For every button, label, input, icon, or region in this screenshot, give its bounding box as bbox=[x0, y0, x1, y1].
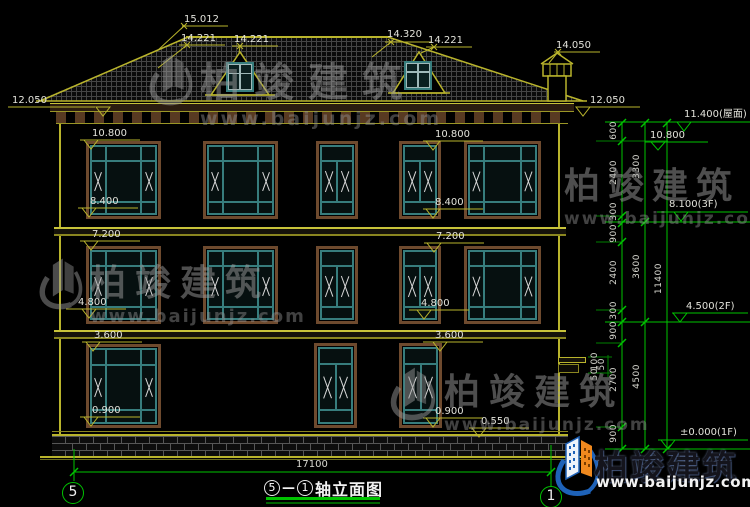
cornice-3f-2f bbox=[54, 227, 566, 236]
level-left-10800: 10.800 bbox=[92, 128, 127, 139]
level-left-8400: 8.400 bbox=[90, 196, 119, 207]
elev-mark-1f: ±0.000(1F) bbox=[680, 427, 737, 438]
watermark-url: www.baijunjz.com bbox=[200, 108, 442, 130]
title-axis-separator: — bbox=[282, 481, 295, 496]
title-text: 轴立面图 bbox=[315, 476, 383, 500]
chimney-level-label: 14.050 bbox=[556, 40, 591, 51]
window-1f-2 bbox=[314, 343, 357, 428]
elevation-drawing-canvas: 15.012 14.221 14.221 14.320 14.221 14.05… bbox=[0, 0, 750, 507]
window-2f-5 bbox=[464, 246, 541, 324]
watermark-top: 柏竣建筑 www.baijunjz.com bbox=[148, 50, 442, 130]
dim-11400: 11400 bbox=[654, 263, 664, 294]
window-3f-2 bbox=[203, 141, 278, 219]
chimney-cap-top bbox=[541, 53, 573, 64]
eave-left-level-label: 12.050 bbox=[12, 95, 47, 106]
level-left-7200: 7.200 bbox=[92, 229, 121, 240]
dim-900b: 900 bbox=[609, 321, 619, 340]
cornice-2f-1f bbox=[54, 330, 566, 339]
brand-logo-icon bbox=[554, 432, 598, 500]
watermark-name: 柏竣建筑 bbox=[564, 157, 750, 209]
dim-3600: 3600 bbox=[632, 254, 642, 279]
window-3f-1 bbox=[86, 141, 161, 219]
level-left-3600: 3.600 bbox=[94, 330, 123, 341]
dim-300b: 300 bbox=[609, 301, 619, 320]
level-mid-8400: 8.400 bbox=[435, 197, 464, 208]
left-slope-level-label: 14.221 bbox=[181, 33, 216, 44]
title-axis-start-bubble: 5 bbox=[264, 480, 280, 496]
dim-600: 600 bbox=[609, 121, 619, 140]
window-2f-3 bbox=[316, 246, 358, 324]
ridge-right-level-label: 14.320 bbox=[387, 29, 422, 40]
level-mid-4800: 4.800 bbox=[421, 298, 450, 309]
watermark-right: 柏竣建筑 www.baijunjz.com bbox=[564, 157, 750, 229]
watermark-logo-icon bbox=[388, 363, 438, 421]
watermark-lower-right: 柏竣建筑 www.baijunjz.com bbox=[388, 363, 650, 435]
chimney-cap bbox=[543, 64, 571, 76]
eave-right-level-label: 12.050 bbox=[590, 95, 625, 106]
window-2f-4 bbox=[399, 246, 441, 324]
brand-url: www.baijunjz.com bbox=[596, 473, 750, 491]
watermark-name: 柏竣建筑 bbox=[90, 254, 306, 306]
window-3f-3 bbox=[316, 141, 358, 219]
watermark-logo-icon bbox=[38, 254, 84, 310]
watermark-logo-icon bbox=[148, 50, 194, 106]
elev-mark-2f: 4.500(2F) bbox=[686, 301, 735, 312]
level-mid-7200: 7.200 bbox=[436, 231, 465, 242]
level-mid-3600: 3.600 bbox=[435, 330, 464, 341]
dormer-left-level-label: 14.221 bbox=[234, 34, 269, 45]
plinth-brick-row bbox=[52, 436, 568, 443]
watermark-middle-left: 柏竣建筑 www.baijunjz.com bbox=[38, 254, 306, 327]
ridge-level-label: 15.012 bbox=[184, 14, 219, 25]
axis-bubble-5: 5 bbox=[62, 482, 84, 504]
window-3f-5 bbox=[464, 141, 541, 219]
ground-line bbox=[40, 456, 585, 458]
title-axis-end-bubble: 1 bbox=[297, 480, 313, 496]
level-left-0900: 0.900 bbox=[92, 405, 121, 416]
dormer-right-level-label: 14.221 bbox=[428, 35, 463, 46]
watermark-name: 柏竣建筑 bbox=[444, 363, 650, 415]
watermark-url: www.baijunjz.com bbox=[90, 306, 306, 327]
plinth-brick-row bbox=[52, 443, 568, 450]
overall-width-dim: 17100 bbox=[296, 459, 328, 470]
drawing-title: 5 — 1 轴立面图 bbox=[264, 476, 383, 500]
dim-2400b: 2400 bbox=[609, 260, 619, 285]
elev-mark-10800: 10.800 bbox=[650, 130, 685, 141]
watermark-url: www.baijunjz.com bbox=[444, 415, 650, 435]
level-mid-10800: 10.800 bbox=[435, 129, 470, 140]
elev-mark-roof: 11.400(屋面) bbox=[684, 109, 747, 120]
watermark-url: www.baijunjz.com bbox=[564, 209, 750, 229]
watermark-name: 柏竣建筑 bbox=[200, 50, 442, 108]
